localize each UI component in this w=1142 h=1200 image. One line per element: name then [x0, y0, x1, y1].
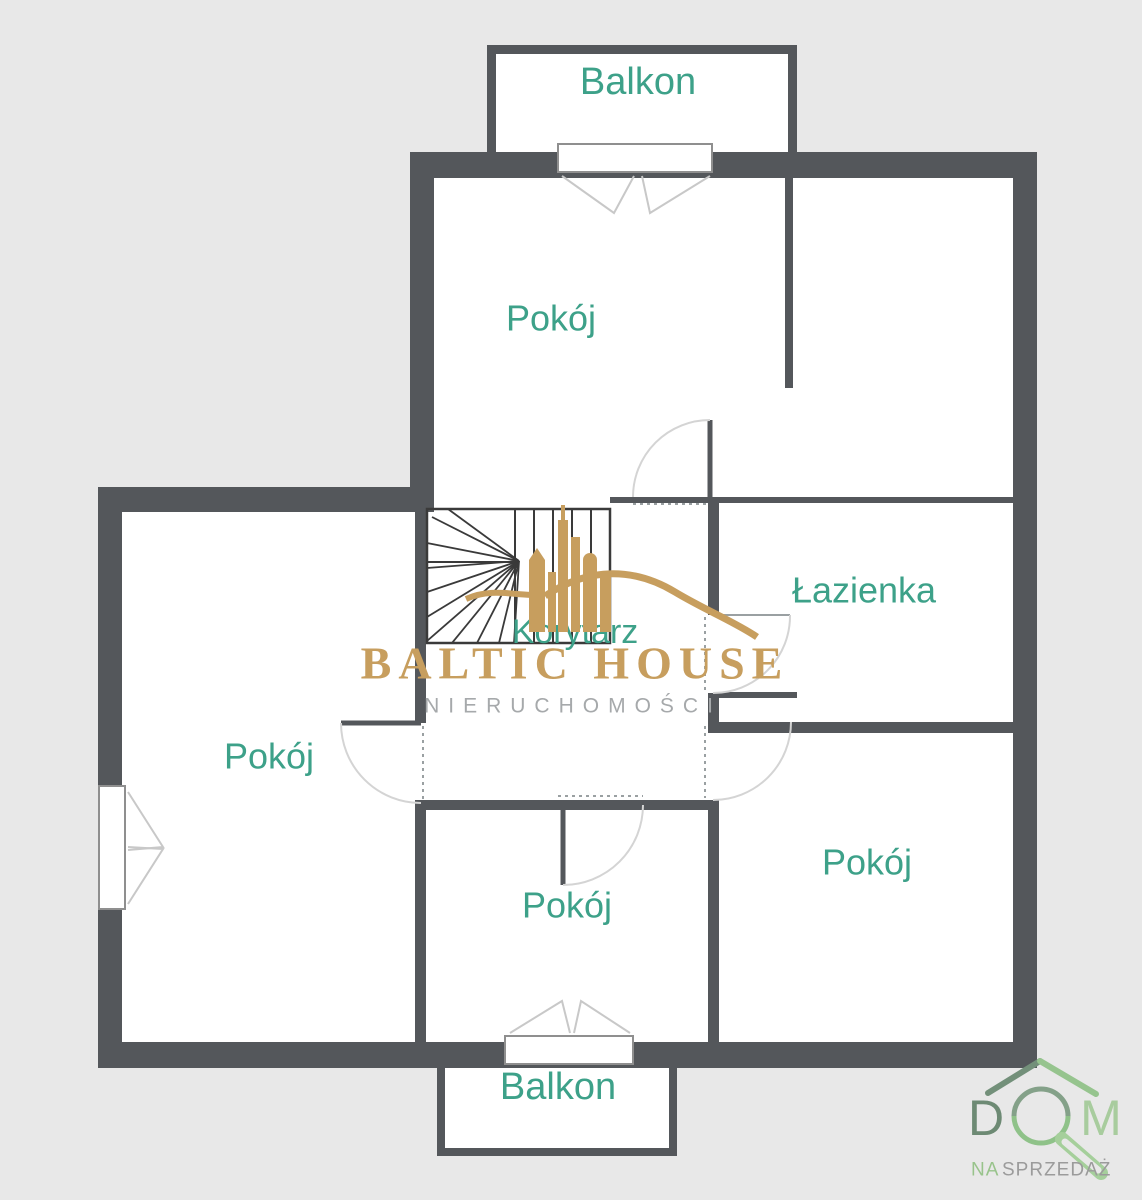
agency-badge: D M NA SPRZEDAŻ	[968, 1061, 1122, 1181]
label-room-left: Pokój	[224, 736, 314, 777]
label-balcony-top: Balkon	[580, 61, 696, 103]
badge-letter-d: D	[968, 1090, 1004, 1146]
label-balcony-bottom: Balkon	[500, 1066, 616, 1108]
balcony-bottom-wall-right	[669, 1068, 677, 1156]
balcony-door-top	[558, 144, 712, 172]
badge-sub-sprzedaz: SPRZEDAŻ	[1002, 1160, 1111, 1181]
balcony-bottom-wall-left	[437, 1068, 445, 1156]
balcony-door-bottom	[505, 1036, 633, 1064]
balcony-top-wall-top	[487, 45, 797, 54]
balcony-top-wall-left	[487, 45, 496, 152]
wall-bottom-rooms-divider	[708, 800, 719, 1042]
label-room-top: Pokój	[506, 298, 596, 339]
floor-plan-page: Balkon Pokój Łazienka Korytarz Pokój Pok…	[0, 0, 1142, 1200]
label-room-bottom-middle: Pokój	[522, 885, 612, 926]
label-room-bottom-right: Pokój	[822, 842, 912, 883]
wall-left-room-right-lower	[415, 803, 426, 1042]
floor-plan-svg: Balkon Pokój Łazienka Korytarz Pokój Pok…	[0, 0, 1142, 1200]
wall-left-outer-lower	[98, 909, 122, 1068]
watermark-tagline-text: NIERUCHOMOŚCI	[424, 694, 722, 718]
wall-corridor-right-upper	[708, 497, 719, 615]
wall-top-outer	[410, 152, 1037, 178]
wall-left-room-right-upper	[415, 512, 426, 723]
watermark-brand-text: BALTIC HOUSE	[361, 638, 790, 689]
wall-left-section-top	[98, 487, 430, 512]
balcony-bottom-wall-bottom	[437, 1148, 677, 1156]
wall-right-outer	[1013, 152, 1037, 1068]
left-window	[99, 786, 125, 909]
wall-bathroom-stub	[715, 692, 797, 698]
balcony-top-wall-right	[788, 45, 797, 152]
badge-sub-na: NA	[971, 1160, 999, 1181]
wall-bathroom-bottom	[708, 722, 1013, 733]
label-bathroom: Łazienka	[792, 570, 937, 611]
wall-top-section-left	[410, 152, 434, 512]
wall-left-outer-upper	[98, 487, 122, 786]
top-section-floor	[433, 178, 1013, 512]
badge-letter-m: M	[1080, 1090, 1122, 1146]
wall-top-room-stub	[785, 178, 793, 388]
wall-top-room-bottom-thin	[610, 497, 1013, 503]
